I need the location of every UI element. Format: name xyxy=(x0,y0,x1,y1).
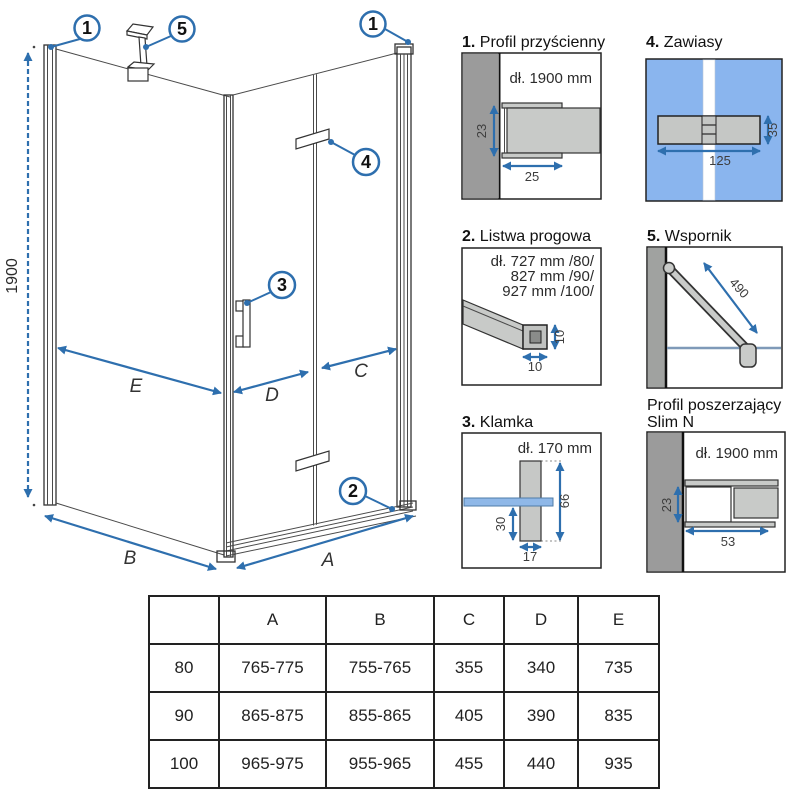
length-label: dł. 1900 mm xyxy=(509,70,592,87)
value-cell: 855-865 xyxy=(326,692,434,740)
table-row: 90 865-875 855-865 405 390 835 xyxy=(149,692,659,740)
right-wall-profile xyxy=(395,44,413,507)
svg-text:1: 1 xyxy=(82,18,92,38)
svg-text:25: 25 xyxy=(525,169,539,184)
height-dim-label: 1900 xyxy=(4,258,21,294)
svg-text:dł. 170 mm: dł. 170 mm xyxy=(518,440,592,457)
value-cell: 765-775 xyxy=(219,644,326,692)
value-cell: 405 xyxy=(434,692,504,740)
wall-section xyxy=(648,248,665,387)
size-cell: 80 xyxy=(149,644,219,692)
corner-post xyxy=(224,95,233,557)
value-cell: 355 xyxy=(434,644,504,692)
panel-title-handle: 3. Klamka xyxy=(462,414,533,431)
header-cell: A xyxy=(219,596,326,644)
value-cell: 390 xyxy=(504,692,578,740)
glass-clamp xyxy=(740,344,756,367)
svg-text:53: 53 xyxy=(721,534,735,549)
support-bracket xyxy=(127,24,154,81)
panel-extension-profile-detail: dł. 1900 mm 23 53 xyxy=(647,432,785,572)
value-cell: 865-875 xyxy=(219,692,326,740)
dim-c-label: C xyxy=(354,361,368,382)
callout-wall-profile-left: 1 xyxy=(48,16,100,51)
size-cell: 90 xyxy=(149,692,219,740)
dim-b-label: B xyxy=(124,548,137,569)
callout-handle: 3 xyxy=(244,272,295,306)
svg-text:1: 1 xyxy=(368,14,378,34)
width-dimensions: E D C B A xyxy=(45,348,413,571)
height-dimension: 1900 xyxy=(4,46,35,507)
size-cell: 100 xyxy=(149,740,219,788)
svg-text:23: 23 xyxy=(659,498,674,512)
table-row: 100 965-975 955-965 455 440 935 xyxy=(149,740,659,788)
header-cell: C xyxy=(434,596,504,644)
value-cell: 735 xyxy=(578,644,659,692)
svg-text:927 mm /100/: 927 mm /100/ xyxy=(502,283,595,300)
header-cell: B xyxy=(326,596,434,644)
technical-drawing-page: 1900 E D C B A 1 5 1 xyxy=(0,0,801,800)
panel-title-threshold: 2. Listwa progowa xyxy=(462,228,591,245)
svg-text:3: 3 xyxy=(277,275,287,295)
callout-threshold: 2 xyxy=(340,478,395,512)
table-header-row: A B C D E xyxy=(149,596,659,644)
value-cell: 935 xyxy=(578,740,659,788)
dim-d-label: D xyxy=(265,385,279,406)
panel-hinge-detail: 35 125 xyxy=(646,59,782,201)
header-cell: E xyxy=(578,596,659,644)
dimension-table: A B C D E 80 765-775 755-765 355 340 735… xyxy=(148,595,660,789)
panel-wall-profile-detail: dł. 1900 mm 23 25 xyxy=(462,53,601,199)
value-cell: 965-975 xyxy=(219,740,326,788)
side-glass-bottom-edge xyxy=(56,503,224,555)
value-cell: 835 xyxy=(578,692,659,740)
panel-title-extension-profile: Profil poszerzający Slim N xyxy=(647,397,781,431)
value-cell: 340 xyxy=(504,644,578,692)
svg-text:30: 30 xyxy=(493,517,508,531)
glass-strip xyxy=(464,498,553,506)
bottom-hinge xyxy=(296,451,329,471)
dim-a-label: A xyxy=(321,550,335,571)
value-cell: 455 xyxy=(434,740,504,788)
value-cell: 440 xyxy=(504,740,578,788)
panel-support-detail: 490 xyxy=(647,247,782,388)
svg-text:35: 35 xyxy=(765,123,780,137)
svg-text:17: 17 xyxy=(523,549,537,564)
svg-text:10: 10 xyxy=(528,359,542,374)
svg-text:10: 10 xyxy=(552,330,567,344)
svg-text:2: 2 xyxy=(348,481,358,501)
callout-wall-profile-right: 1 xyxy=(361,12,412,46)
svg-text:125: 125 xyxy=(709,153,731,168)
svg-text:23: 23 xyxy=(474,124,489,138)
diagram-canvas: 1900 E D C B A 1 5 1 xyxy=(0,0,801,592)
front-glass-top-edge xyxy=(233,53,397,95)
panel-handle-detail: dł. 170 mm 30 17 66 xyxy=(462,433,601,568)
profile-channel xyxy=(686,487,731,522)
callout-hinge: 4 xyxy=(328,139,379,175)
svg-text:66: 66 xyxy=(557,494,572,508)
left-wall-profile xyxy=(44,45,56,505)
value-cell: 755-765 xyxy=(326,644,434,692)
header-cell xyxy=(149,596,219,644)
panel-title-hinge: 4. Zawiasy xyxy=(646,34,722,51)
header-cell: D xyxy=(504,596,578,644)
table-row: 80 765-775 755-765 355 340 735 xyxy=(149,644,659,692)
shower-enclosure-drawing: 1900 E D C B A 1 5 1 xyxy=(4,12,416,572)
callout-support: 5 xyxy=(143,17,195,51)
svg-text:5: 5 xyxy=(177,19,187,39)
panel-threshold-detail: dł. 727 mm /80/ 827 mm /90/ 927 mm /100/… xyxy=(462,248,601,385)
panel-title-support: 5. Wspornik xyxy=(647,228,731,245)
top-hinge xyxy=(296,129,329,149)
svg-text:4: 4 xyxy=(361,152,371,172)
svg-text:dł. 1900 mm: dł. 1900 mm xyxy=(695,445,778,462)
panel-title-wall-profile: 1. Profil przyścienny xyxy=(462,34,605,51)
dim-e-label: E xyxy=(130,376,143,397)
profile-insert xyxy=(734,488,778,518)
value-cell: 955-965 xyxy=(326,740,434,788)
door-handle xyxy=(236,300,250,347)
